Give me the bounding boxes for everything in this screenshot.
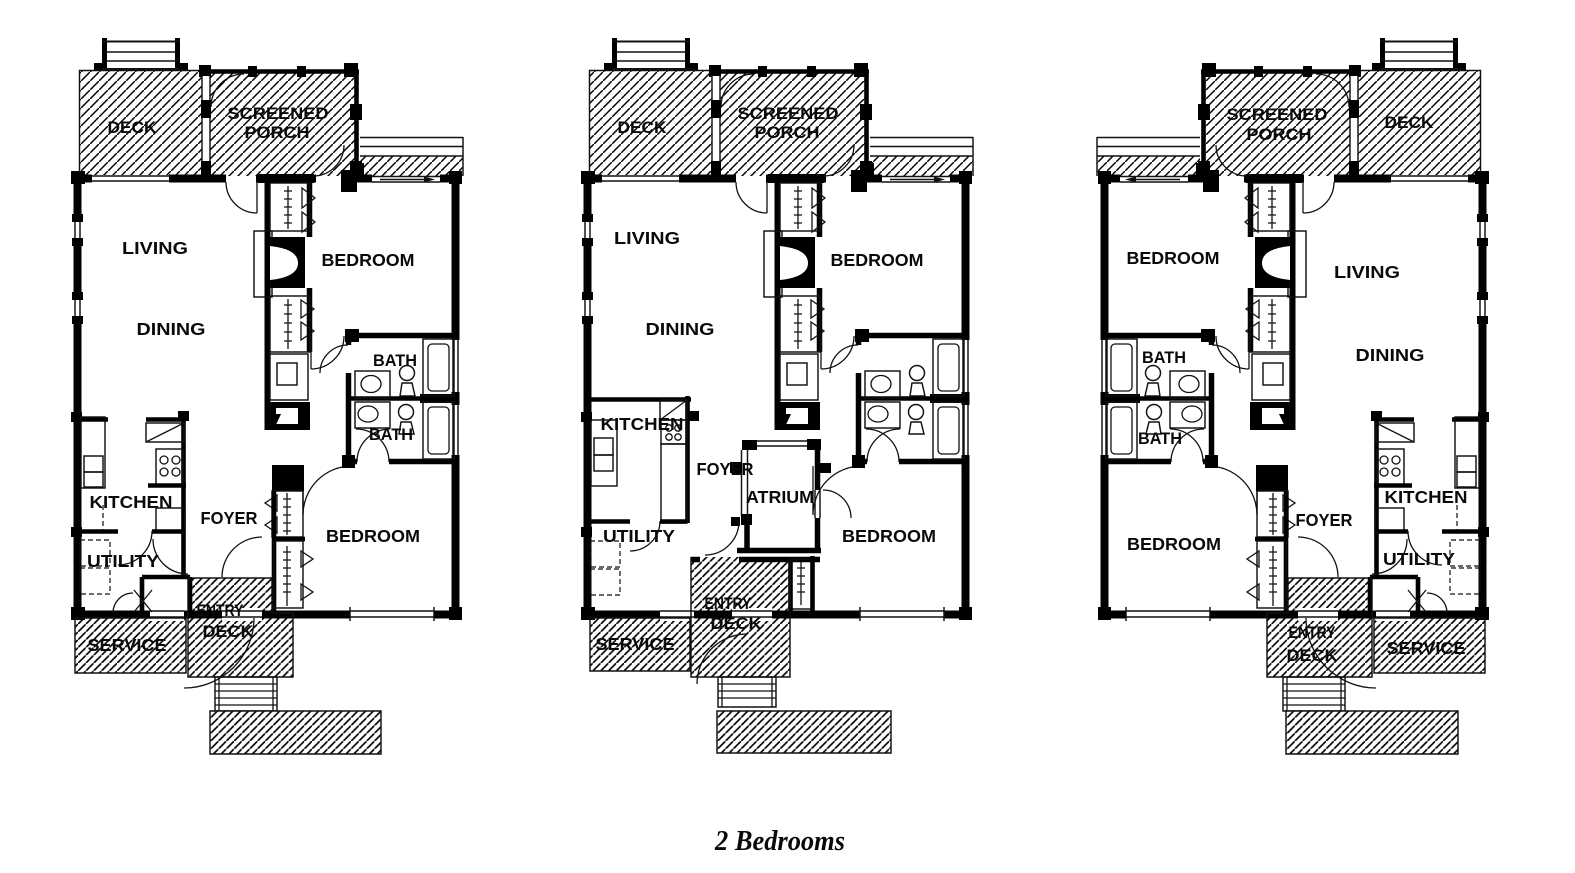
svg-text:SCREENED: SCREENED bbox=[228, 105, 329, 123]
svg-text:LIVING: LIVING bbox=[122, 238, 188, 258]
svg-text:ENTRY: ENTRY bbox=[1289, 624, 1336, 642]
svg-text:DECK: DECK bbox=[1287, 647, 1338, 665]
svg-text:DECK: DECK bbox=[711, 615, 762, 633]
svg-text:PORCH: PORCH bbox=[245, 124, 310, 142]
svg-text:DECK: DECK bbox=[203, 623, 254, 641]
svg-text:SERVICE: SERVICE bbox=[88, 635, 167, 655]
svg-text:LIVING: LIVING bbox=[1334, 262, 1400, 282]
svg-text:BATH: BATH bbox=[1138, 430, 1182, 448]
svg-text:SCREENED: SCREENED bbox=[1227, 106, 1328, 124]
svg-text:UTILITY: UTILITY bbox=[603, 526, 675, 546]
svg-text:BEDROOM: BEDROOM bbox=[1127, 534, 1221, 554]
svg-text:BATH: BATH bbox=[1142, 349, 1186, 367]
svg-text:BEDROOM: BEDROOM bbox=[831, 250, 924, 270]
svg-text:SCREENED: SCREENED bbox=[738, 105, 839, 123]
svg-text:DINING: DINING bbox=[646, 319, 715, 339]
svg-text:PORCH: PORCH bbox=[1247, 126, 1312, 144]
svg-text:DECK: DECK bbox=[108, 119, 157, 137]
svg-text:BEDROOM: BEDROOM bbox=[842, 526, 936, 546]
svg-text:BEDROOM: BEDROOM bbox=[322, 250, 415, 270]
svg-text:UTILITY: UTILITY bbox=[1383, 549, 1455, 569]
svg-text:DECK: DECK bbox=[1385, 114, 1434, 132]
svg-text:ENTRY: ENTRY bbox=[705, 595, 752, 613]
svg-text:LIVING: LIVING bbox=[614, 228, 680, 248]
svg-text:FOYER: FOYER bbox=[201, 508, 258, 528]
svg-text:DINING: DINING bbox=[137, 319, 206, 339]
svg-text:UTILITY: UTILITY bbox=[87, 551, 159, 571]
svg-text:KITCHEN: KITCHEN bbox=[90, 492, 173, 512]
svg-text:BEDROOM: BEDROOM bbox=[326, 526, 420, 546]
svg-text:FOYER: FOYER bbox=[697, 459, 754, 479]
svg-text:KITCHEN: KITCHEN bbox=[601, 414, 684, 434]
svg-text:ATRIUM: ATRIUM bbox=[746, 487, 814, 507]
svg-text:BEDROOM: BEDROOM bbox=[1127, 248, 1220, 268]
svg-text:2 Bedrooms: 2 Bedrooms bbox=[714, 826, 845, 857]
svg-text:PORCH: PORCH bbox=[755, 124, 820, 142]
svg-text:FOYER: FOYER bbox=[1296, 510, 1353, 530]
svg-text:DINING: DINING bbox=[1356, 345, 1425, 365]
svg-text:SERVICE: SERVICE bbox=[596, 634, 675, 654]
svg-text:ENTRY: ENTRY bbox=[197, 602, 244, 620]
svg-text:DECK: DECK bbox=[618, 119, 667, 137]
svg-text:BATH: BATH bbox=[373, 352, 417, 370]
svg-text:BATH: BATH bbox=[369, 426, 413, 444]
svg-text:KITCHEN: KITCHEN bbox=[1385, 487, 1468, 507]
svg-text:SERVICE: SERVICE bbox=[1387, 638, 1466, 658]
